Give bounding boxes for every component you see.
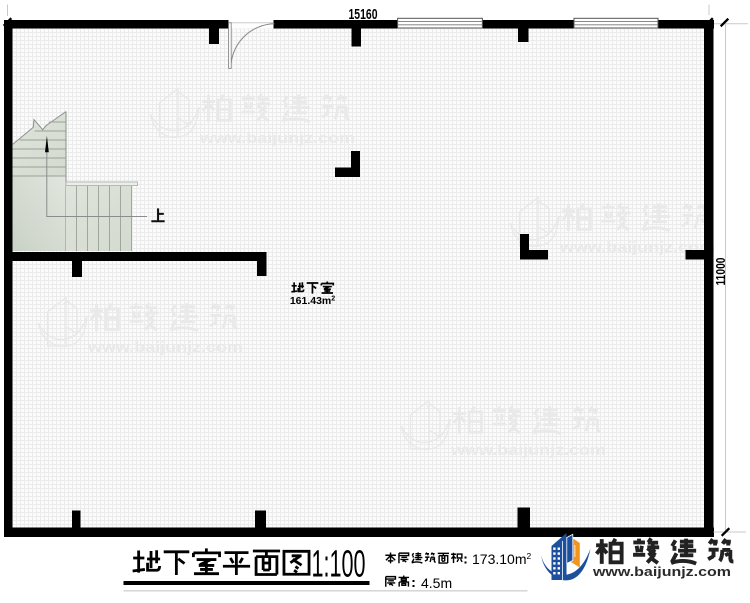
svg-text:173.10m2: 173.10m2: [472, 551, 531, 567]
svg-text:1:100: 1:100: [312, 544, 366, 586]
svg-text:www.baijunjz.com: www.baijunjz.com: [592, 564, 731, 579]
svg-text:11000: 11000: [714, 257, 728, 285]
svg-text:www.baijunjz.com: www.baijunjz.com: [199, 131, 355, 147]
svg-text:15160: 15160: [349, 6, 378, 23]
svg-text:4.5m: 4.5m: [421, 575, 452, 591]
svg-text:161.43m2: 161.43m2: [290, 295, 335, 307]
